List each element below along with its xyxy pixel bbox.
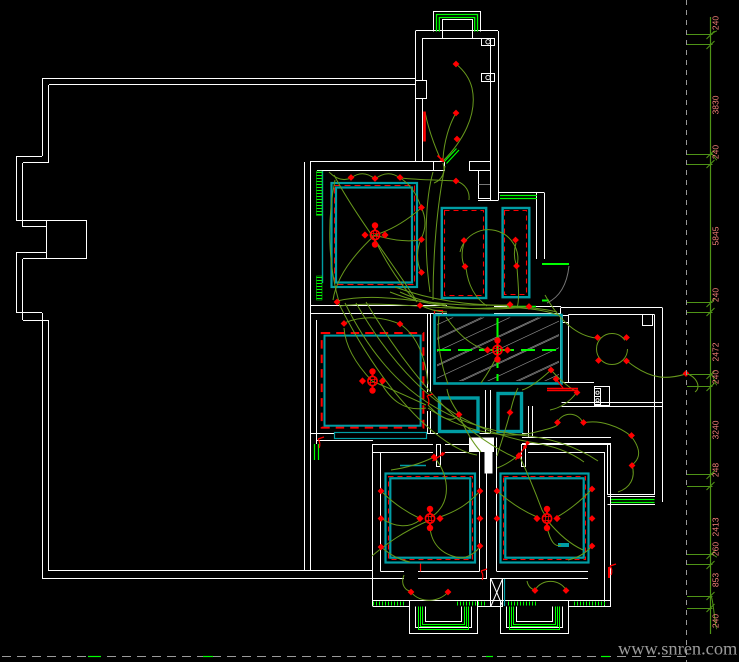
svg-text:240: 240: [711, 16, 721, 30]
svg-text:2472: 2472: [711, 342, 721, 361]
svg-text:3240: 3240: [711, 420, 721, 439]
svg-text:www.snren.com: www.snren.com: [618, 639, 738, 659]
svg-text:240: 240: [711, 145, 721, 159]
svg-text:853: 853: [711, 573, 721, 587]
svg-text:260: 260: [711, 542, 721, 556]
svg-text:240: 240: [711, 288, 721, 302]
svg-text:240: 240: [711, 370, 721, 384]
svg-text:5845: 5845: [711, 226, 721, 245]
svg-text:248: 248: [711, 463, 721, 477]
svg-text:240: 240: [711, 614, 721, 628]
svg-text:2413: 2413: [711, 517, 721, 536]
svg-text:3830: 3830: [711, 95, 721, 114]
